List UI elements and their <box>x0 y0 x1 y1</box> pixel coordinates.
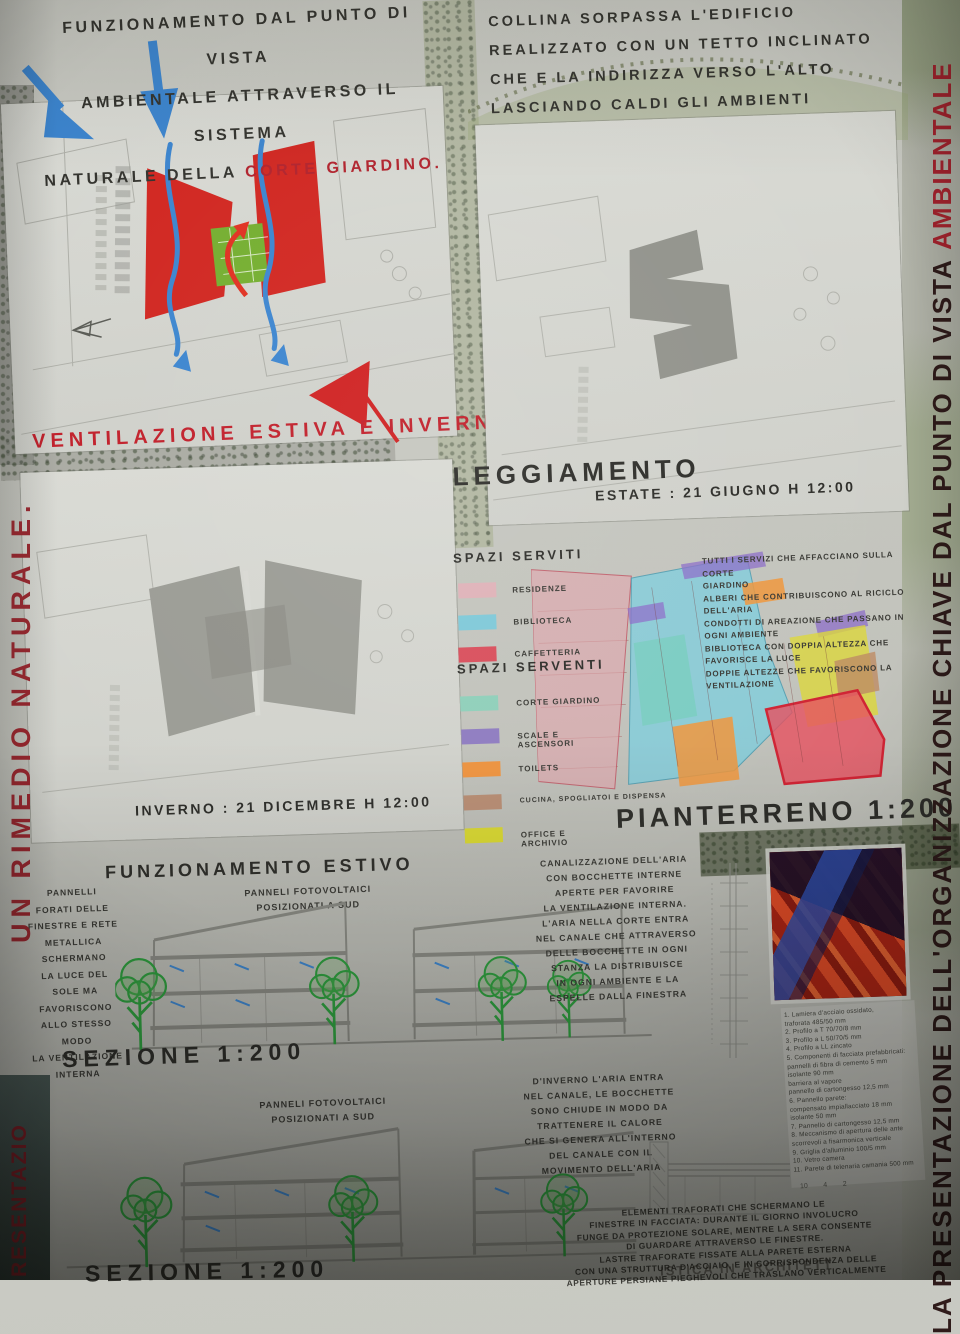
winter-section-label: SEZIONE 1:200 <box>85 1255 330 1287</box>
legend-label-biblioteca: BIBLIOTECA <box>513 616 572 627</box>
facade-render-image <box>769 848 906 1001</box>
legend-swatch-residenze <box>458 582 497 598</box>
right-title-main: LA PRESENTAZIONE DELL'ORGANIZZAZIONE CHI… <box>927 250 957 1334</box>
air-channel-note-summer: CANALIZZAZIONE DELL'ARIA CON BOCCHETTE I… <box>515 851 716 1008</box>
legend-label-caffetteria: CAFFETTERIA <box>514 647 581 658</box>
summer-operation-title: FUNZIONAMENTO ESTIVO <box>105 854 414 884</box>
serving-rows: CORTE GIARDINO SCALE E ASCENSORI TOILETS… <box>457 671 613 846</box>
right-title-banner: LA PRESENTAZIONE DELL'ORGANIZZAZIONE CHI… <box>927 0 958 1334</box>
served-rows: RESIDENZE BIBLIOTECA CAFFETTERIA <box>453 560 606 661</box>
legend-swatch-biblioteca <box>458 614 497 630</box>
legend-label-residenze: RESIDENZE <box>512 584 567 595</box>
ground-floor-notes: TUTTI I SERVIZI CHE AFFACCIANO SULLA COR… <box>702 548 917 693</box>
spaces-legend: SPAZI SERVITI RESIDENZE BIBLIOTECA CAFFE… <box>453 545 613 846</box>
materials-list: 1. Lamiera d'acciaio ossidato, traforata… <box>784 1005 914 1175</box>
detail-callout-numbers: 10 4 2 <box>800 1181 847 1190</box>
left-title-banner: UN RIMEDIO NATURALE. <box>6 438 37 943</box>
facade-screen-note: ELEMENTI TRAFORATI CHE SCHERMANO LE FINE… <box>553 1195 896 1290</box>
detail-drawing-vertical <box>702 858 764 1063</box>
right-title-accent: AMBIENTALE <box>927 61 957 250</box>
intro-left-note: FUNZIONAMENTO DAL PUNTO DI VISTA AMBIENT… <box>31 0 449 201</box>
legend-swatch-corte <box>460 695 499 711</box>
winter-sun-drawing <box>20 459 463 842</box>
photographed-architecture-poster: { "intro": { "left_line1": "FUNZIONAMENT… <box>0 0 960 1280</box>
legend-label-office: OFFICE E ARCHIVIO <box>521 827 614 848</box>
legend-label-corte: CORTE GIARDINO <box>516 696 600 708</box>
legend-swatch-office <box>465 827 504 843</box>
adjacent-panel-strip: PRESENTAZIO <box>0 1075 50 1280</box>
intro-left-line3-black: NATURALE DELLA <box>44 164 238 190</box>
materials-list-card: 1. Lamiera d'acciaio ossidato, traforata… <box>781 1000 926 1188</box>
legend-swatch-cucina <box>463 794 502 810</box>
legend-swatch-scale <box>461 728 500 744</box>
legend-label-toilets: TOILETS <box>518 763 559 773</box>
legend-swatch-caffetteria <box>458 646 497 662</box>
legend-swatch-toilets <box>462 761 501 777</box>
intro-left-line3-accent: CORTE GIARDINO. <box>245 155 443 181</box>
adjacent-panel-text: PRESENTAZIO <box>8 1075 32 1280</box>
legend-label-scale: SCALE E ASCENSORI <box>517 728 610 749</box>
